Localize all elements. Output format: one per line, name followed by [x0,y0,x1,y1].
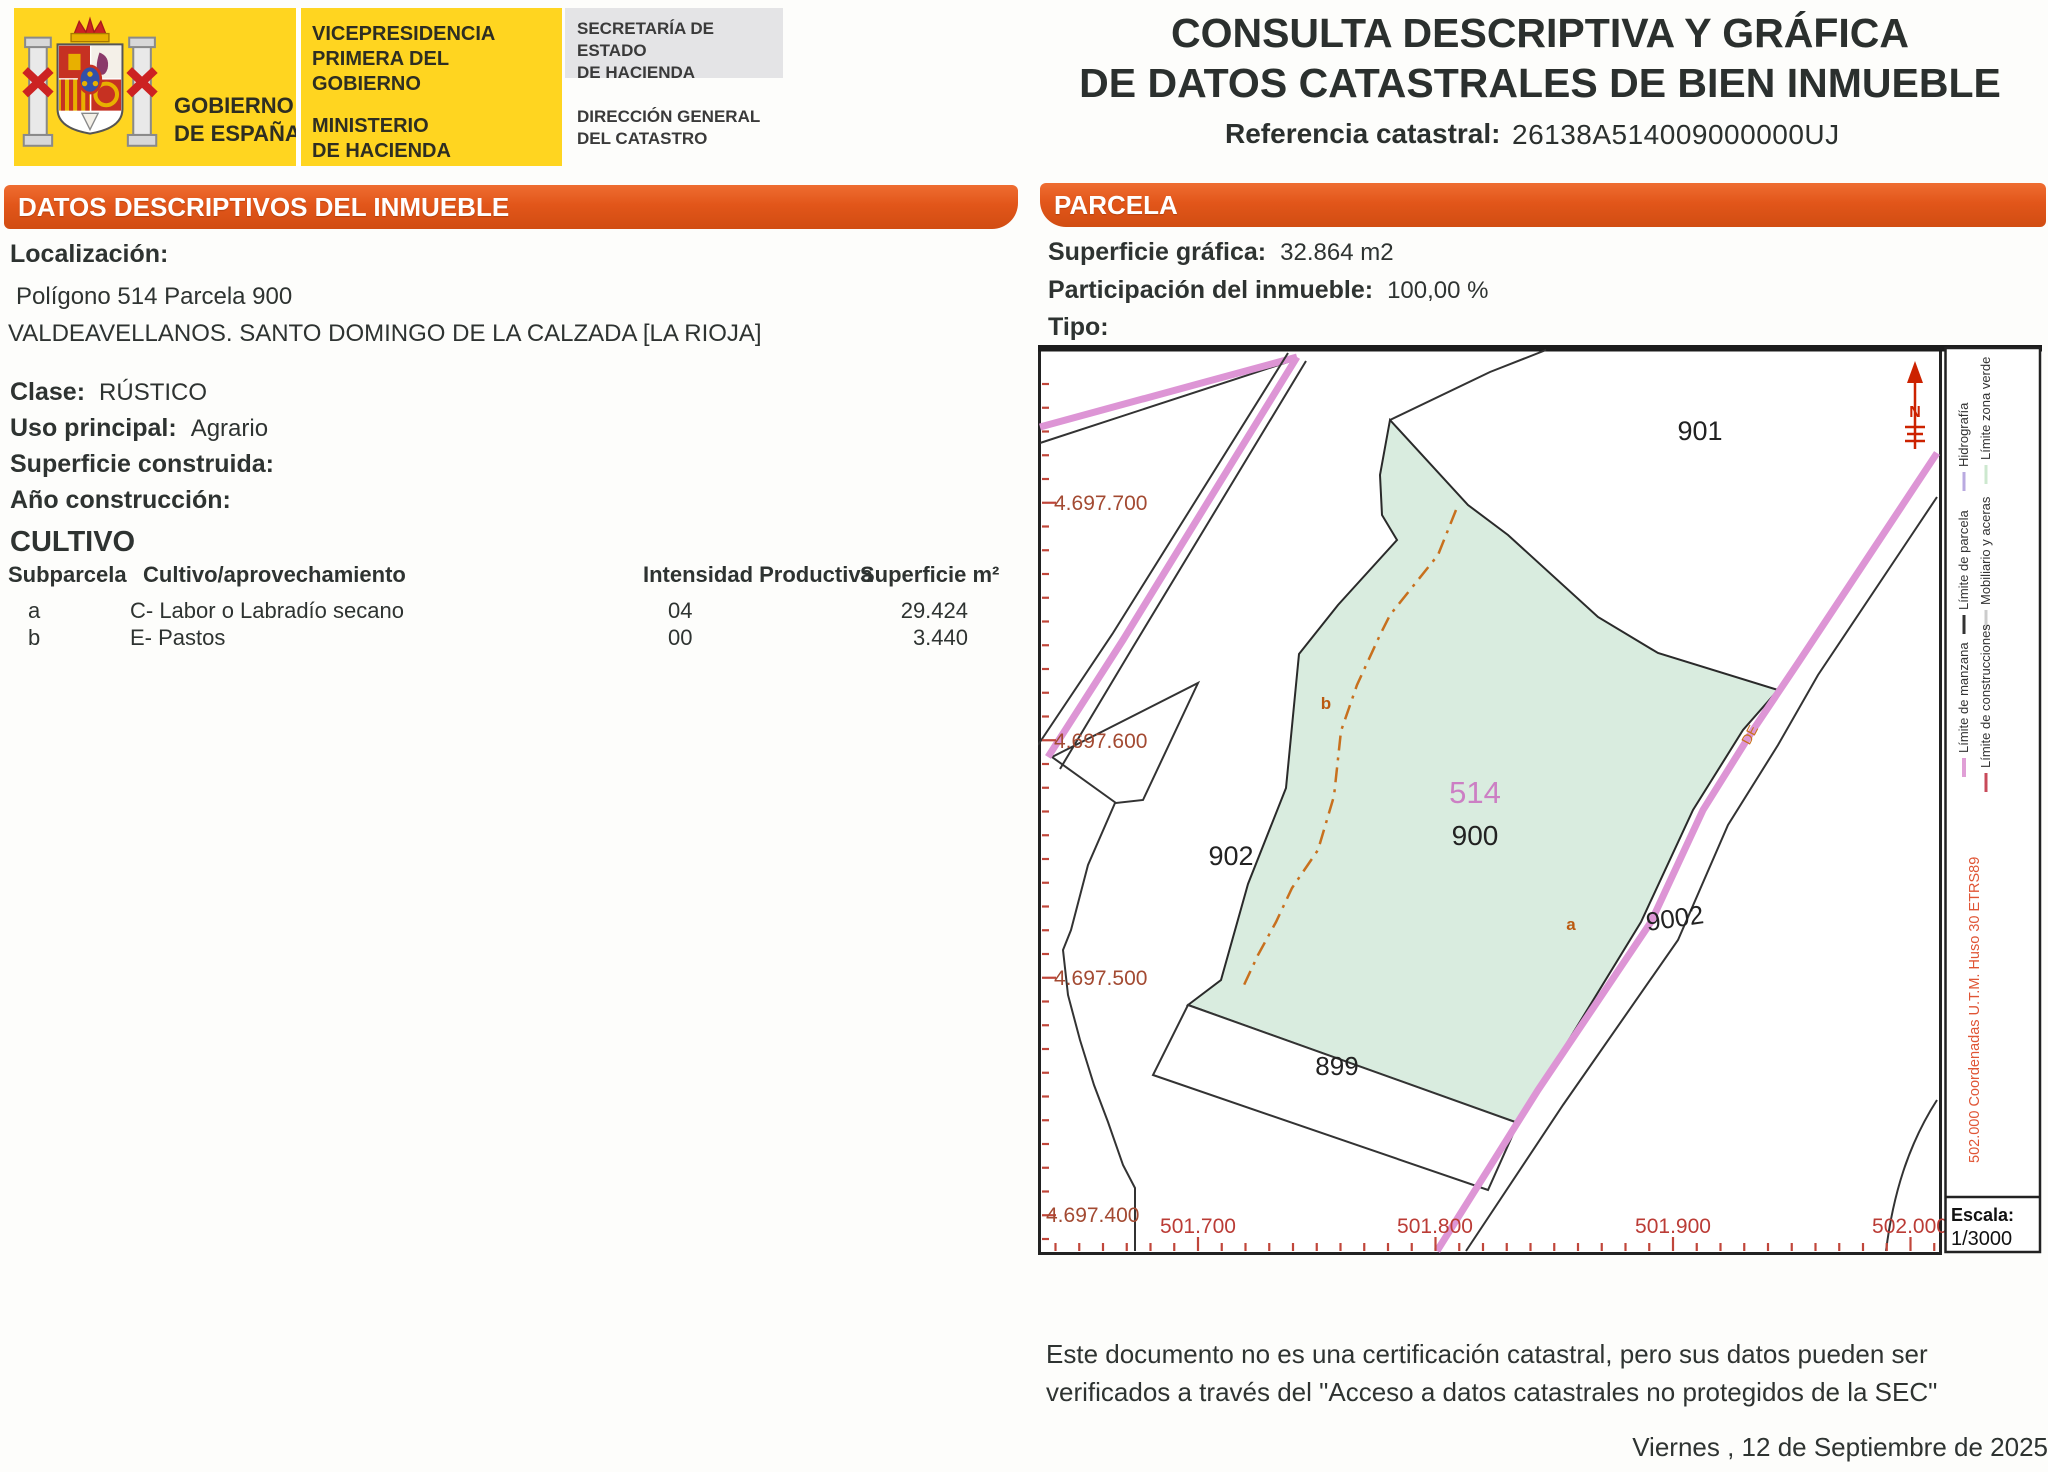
superficie-construida-label: Superficie construida: [10,450,274,479]
superficie-construida-row: Superficie construida: [10,450,288,479]
col-header-subparcela: Subparcela [8,562,127,588]
section-parcela-header: PARCELA [1040,183,2046,227]
legend-label-limite-parcela: Límite de parcela [1956,510,1971,610]
uso-principal-value: Agrario [191,415,268,443]
parcel-label-899: 899 [1315,1051,1358,1081]
escala-value: 1/3000 [1951,1228,2012,1250]
y-axis-label-4697500: 4.697.500 [1054,967,1147,990]
table-cell-intensidad-a: 04 [668,598,692,624]
north-letter: N [1909,404,1921,421]
participacion-label: Participación del inmueble: [1048,276,1373,305]
y-axis-label-4697700: 4.697.700 [1054,492,1147,515]
spain-coat-of-arms-icon [20,16,160,162]
table-cell-cultivo-b: E- Pastos [130,625,225,651]
legend-coordinates-note: 502.000 Coordenadas U.T.M. Huso 30 ETRS8… [1967,857,1983,1163]
localizacion-label: Localización: [10,240,168,269]
gobierno-de-espana-label: GOBIERNO DE ESPAÑA [174,92,309,147]
uso-principal-label: Uso principal: [10,414,177,443]
referencia-catastral-value: 26138A514009000000UJ [1512,119,1840,151]
legend-box [1946,348,2041,1252]
superficie-grafica-value: 32.864 m2 [1280,239,1393,267]
tipo-label: Tipo: [1048,313,1109,342]
anio-construccion-label: Año construcción: [10,486,231,515]
logo-divider [296,8,301,166]
legend-label-limite-manzana: Límite de manzana [1956,642,1971,753]
clase-label: Clase: [10,378,85,407]
parcel-label-902: 902 [1208,841,1253,871]
legend-label-limite-construcciones: Límite de construcciones [1978,624,1993,768]
document-title-line1: CONSULTA DESCRIPTIVA Y GRÁFICA [1060,10,2020,57]
x-axis-label-501900: 501.900 [1635,1215,1711,1238]
cultivo-title: CULTIVO [10,526,135,559]
col-header-cultivo: Cultivo/aprovechamiento [143,562,406,588]
superficie-grafica-label: Superficie gráfica: [1048,238,1266,267]
table-cell-superficie-b: 3.440 [828,625,968,651]
table-cell-intensidad-b: 00 [668,625,692,651]
superficie-grafica-row: Superficie gráfica: 32.864 m2 [1048,238,1394,267]
direccion-general-label: DIRECCIÓN GENERAL DEL CATASTRO [577,106,797,150]
disclaimer-text: Este documento no es una certificación c… [1046,1336,2006,1411]
uso-row: Uso principal: Agrario [10,414,268,443]
table-cell-sub-a: a [28,598,40,624]
legend-label-zona-verde: Límite zona verde [1978,357,1993,460]
legend-label-hidrografia: Hidrografía [1956,402,1971,467]
section-datos-descriptivos-header: DATOS DESCRIPTIVOS DEL INMUEBLE [4,185,1018,229]
vicepresidencia-label: VICEPRESIDENCIA PRIMERA DEL GOBIERNO [312,22,557,97]
document-title-line2: DE DATOS CATASTRALES DE BIEN INMUEBLE [1060,60,2020,107]
clase-value: RÚSTICO [99,379,207,407]
table-cell-sub-b: b [28,625,40,651]
parcel-label-900: 900 [1452,820,1499,851]
escala-label: Escala: [1951,1205,2014,1225]
y-axis-label-4697400: 4.697.400 [1046,1204,1139,1227]
x-axis-label-502000: 502.000 [1872,1215,1948,1238]
subparcel-label-a: a [1566,915,1576,934]
document-date: Viernes , 12 de Septiembre de 2025 [1400,1432,2048,1463]
localizacion-municipio: VALDEAVELLANOS. SANTO DOMINGO DE LA CALZ… [8,320,762,348]
x-axis-label-501800: 501.800 [1397,1215,1473,1238]
y-axis-label-4697600: 4.697.600 [1054,730,1147,753]
x-axis-label-501700: 501.700 [1160,1215,1236,1238]
secretaria-box: SECRETARÍA DE ESTADO DE HACIENDA [565,8,783,78]
clase-row: Clase: RÚSTICO [10,378,207,407]
parcel-label-901: 901 [1677,416,1722,446]
referencia-catastral-label: Referencia catastral: [1225,118,1500,150]
table-cell-superficie-a: 29.424 [828,598,968,624]
ministerio-label: MINISTERIO DE HACIENDA [312,114,557,164]
tipo-row: Tipo: [1048,313,1123,342]
col-header-intensidad: Intensidad Productiva [643,562,873,588]
cadastral-map: 4.697.700 4.697.600 4.697.500 4.697.400 … [1038,345,2042,1255]
parcel-label-514: 514 [1449,775,1501,810]
col-header-superficie: Superficie m² [860,562,999,588]
subparcel-label-b: b [1321,694,1331,713]
anio-construccion-row: Año construcción: [10,486,245,515]
table-cell-cultivo-a: C- Labor o Labradío secano [130,598,404,624]
localizacion-poligono: Polígono 514 Parcela 900 [16,283,292,311]
participacion-row: Participación del inmueble: 100,00 % [1048,276,1489,305]
participacion-value: 100,00 % [1387,277,1488,305]
legend-label-mobiliario: Mobiliario y aceras [1978,496,1993,605]
